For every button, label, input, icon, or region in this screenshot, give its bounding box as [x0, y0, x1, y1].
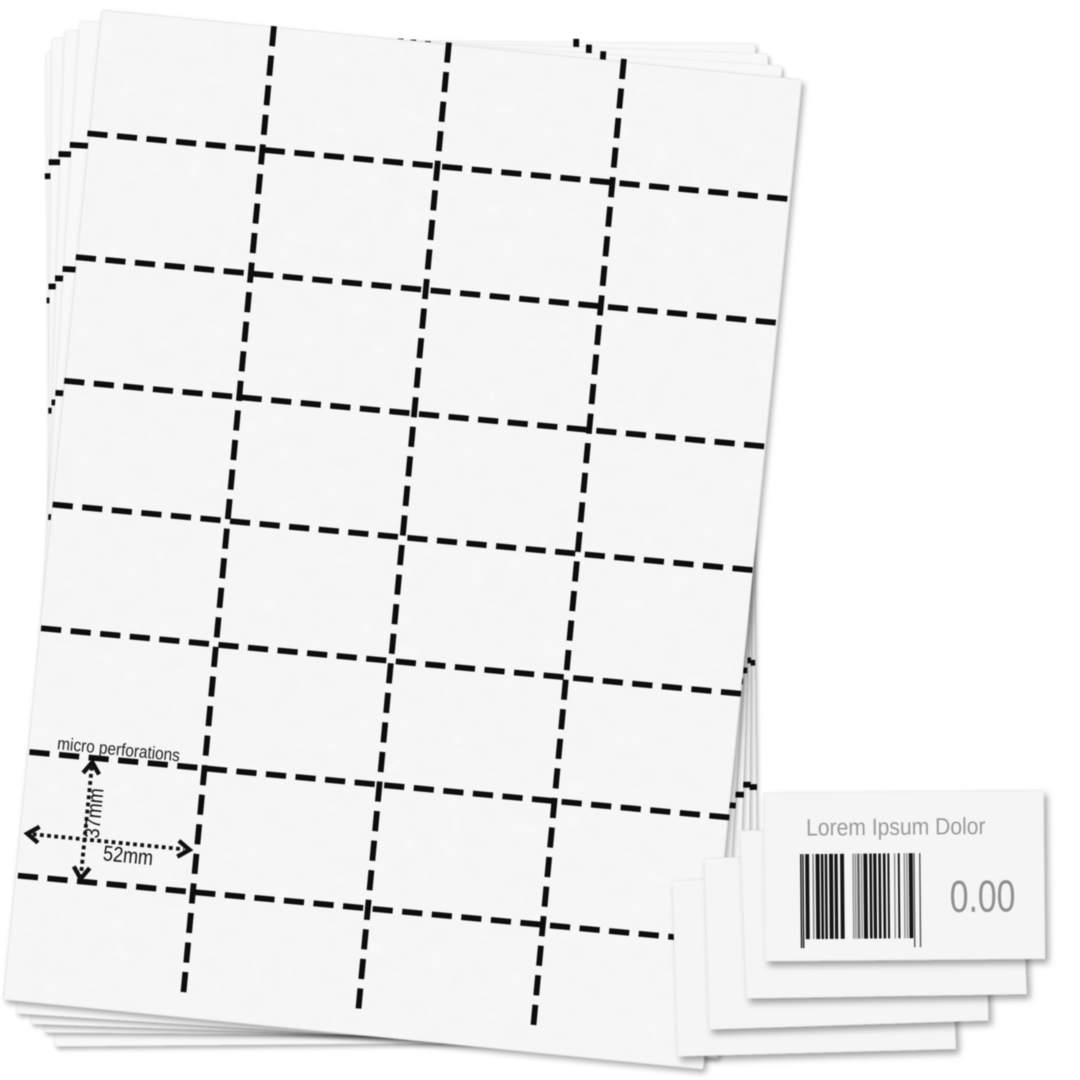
svg-text:52mm: 52mm: [102, 842, 154, 871]
svg-text:37mm: 37mm: [80, 787, 109, 839]
svg-text:0.00: 0.00: [949, 872, 1015, 922]
svg-text:Lorem Ipsum Dolor: Lorem Ipsum Dolor: [806, 813, 986, 841]
